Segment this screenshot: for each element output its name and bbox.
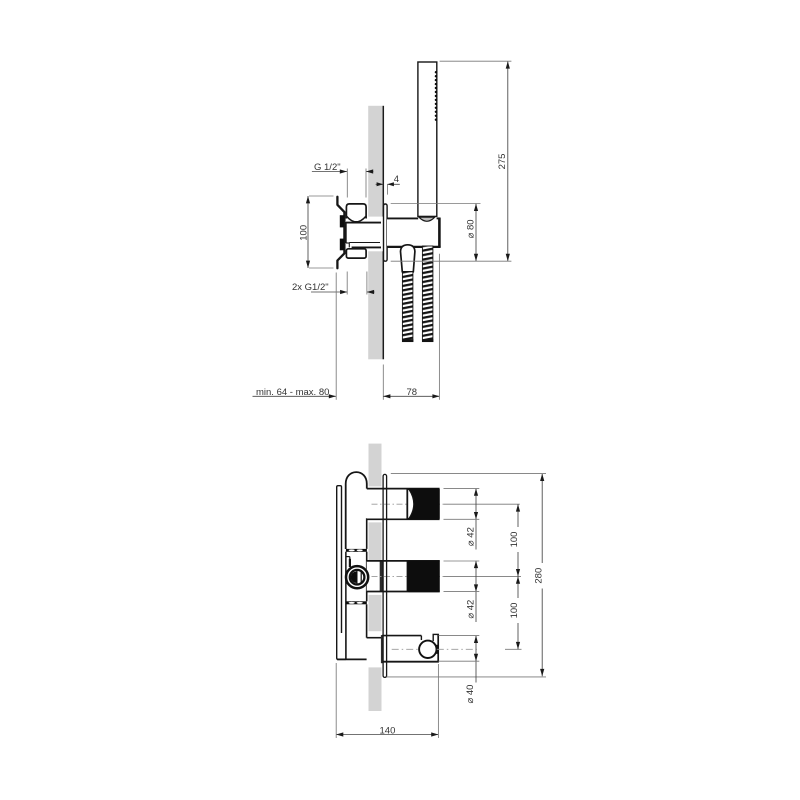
svg-text:⌀ 42: ⌀ 42 <box>465 600 476 619</box>
svg-text:275: 275 <box>497 154 508 170</box>
svg-text:100: 100 <box>298 225 309 241</box>
svg-text:⌀ 42: ⌀ 42 <box>465 527 476 546</box>
svg-text:100: 100 <box>509 603 520 619</box>
svg-text:280: 280 <box>534 568 545 584</box>
svg-text:2x G1/2": 2x G1/2" <box>292 282 329 293</box>
svg-text:140: 140 <box>380 726 396 737</box>
svg-text:⌀ 40: ⌀ 40 <box>465 685 476 704</box>
svg-text:4: 4 <box>394 174 399 185</box>
svg-text:100: 100 <box>509 532 520 548</box>
svg-text:⌀ 80: ⌀ 80 <box>465 219 476 238</box>
